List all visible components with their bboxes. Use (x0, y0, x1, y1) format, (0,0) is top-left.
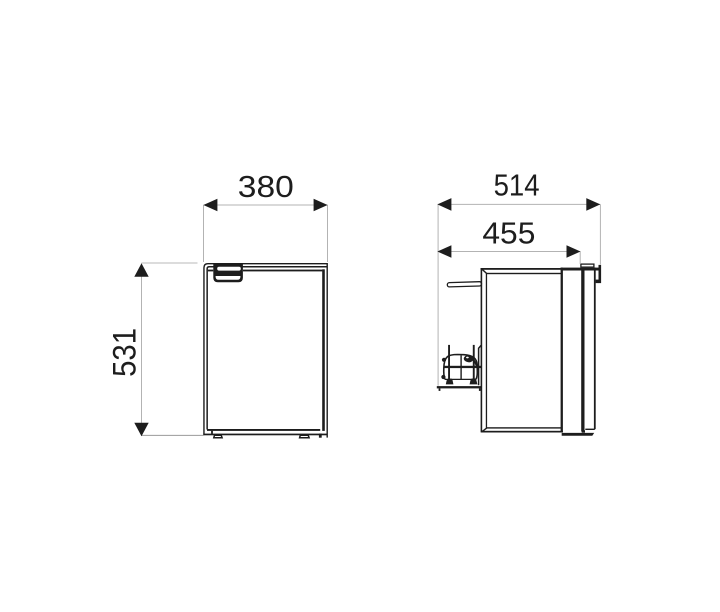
svg-text:531: 531 (107, 328, 143, 377)
svg-text:514: 514 (494, 168, 540, 203)
svg-text:455: 455 (482, 216, 535, 251)
svg-text:380: 380 (238, 169, 294, 204)
